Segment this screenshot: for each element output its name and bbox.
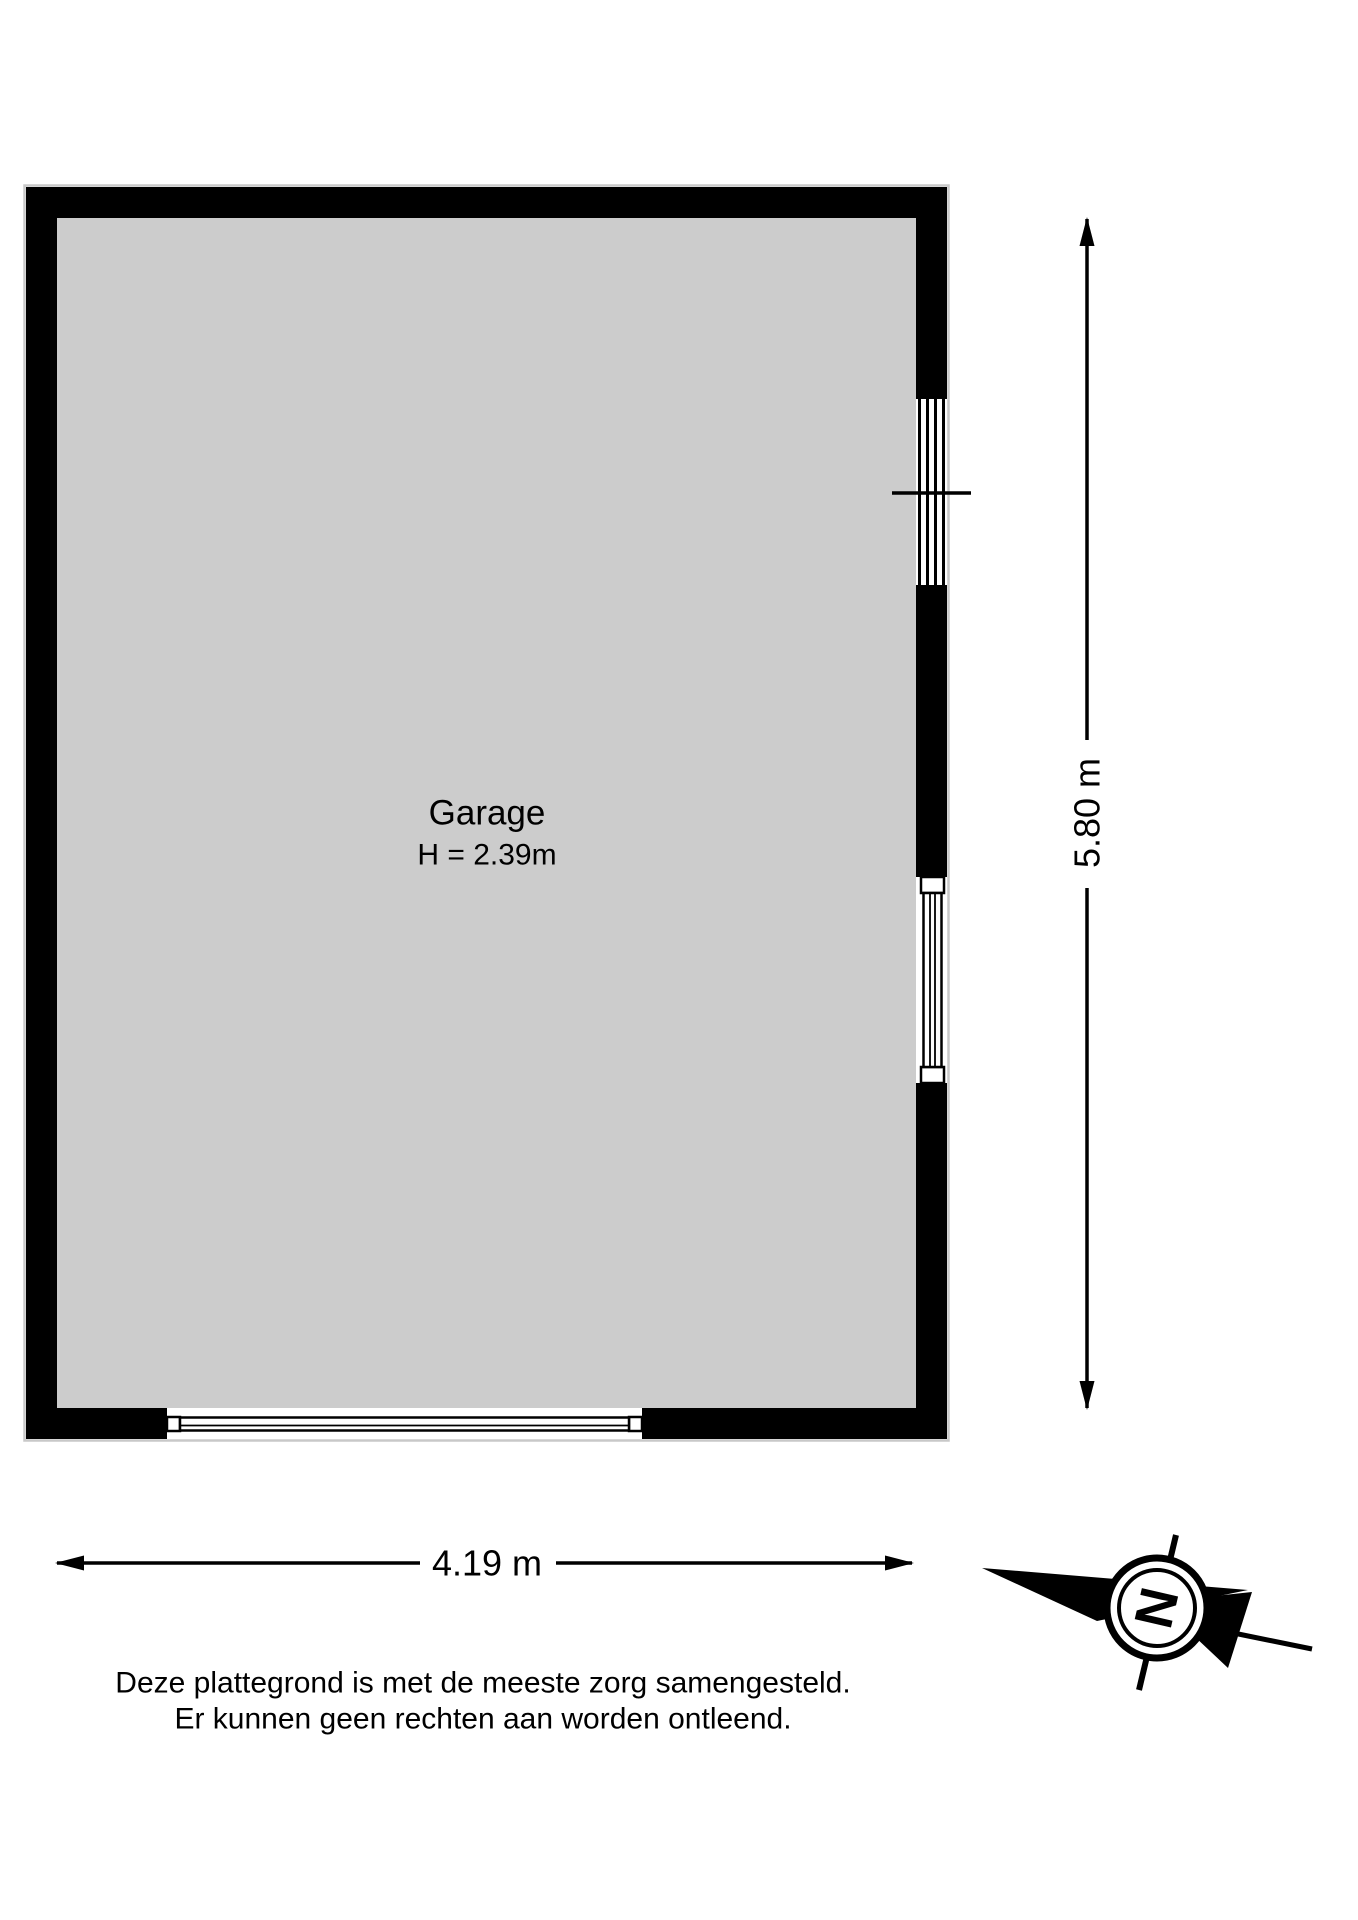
height-dimension-label: 5.80 m xyxy=(1067,758,1108,868)
window-lower-right xyxy=(921,877,944,1083)
arrow-up-icon xyxy=(1080,217,1095,246)
floorplan-page: Garage H = 2.39m 5.80 m 4.19 m N xyxy=(0,0,1358,1920)
wall-left xyxy=(26,187,57,1439)
window-jamb-top xyxy=(921,877,944,893)
dimension-height: 5.80 m xyxy=(1067,217,1108,1410)
wall-top xyxy=(26,187,947,218)
room-name-label: Garage xyxy=(429,794,546,833)
door-leaf xyxy=(180,1418,629,1431)
wall-bottom-right-segment xyxy=(642,1408,947,1439)
arrow-right-icon xyxy=(885,1556,914,1571)
arrow-left-icon xyxy=(55,1556,84,1571)
window-jamb-bottom xyxy=(921,1067,944,1083)
wall-bottom-left-segment xyxy=(26,1408,167,1439)
disclaimer-line-1: Deze plattegrond is met de meeste zorg s… xyxy=(115,1667,850,1700)
floorplan-drawing: Garage H = 2.39m 5.80 m 4.19 m N xyxy=(0,0,1358,1920)
wall-right-upper-segment xyxy=(916,187,947,399)
dimension-width: 4.19 m xyxy=(55,1543,914,1584)
arrow-down-icon xyxy=(1080,1381,1095,1410)
garage-door xyxy=(167,1417,642,1431)
wall-right-lower-segment xyxy=(916,1083,947,1439)
width-dimension-label: 4.19 m xyxy=(432,1543,542,1584)
wall-right-middle-segment xyxy=(916,585,947,877)
compass-north-icon: N xyxy=(982,1535,1312,1690)
room-ceiling-height-label: H = 2.39m xyxy=(417,839,556,872)
door-jamb-left xyxy=(167,1417,180,1431)
disclaimer-line-2: Er kunnen geen rechten aan worden ontlee… xyxy=(174,1703,791,1736)
door-jamb-right xyxy=(629,1417,642,1431)
window-frame xyxy=(924,893,942,1067)
disclaimer-text: Deze plattegrond is met de meeste zorg s… xyxy=(115,1667,850,1736)
